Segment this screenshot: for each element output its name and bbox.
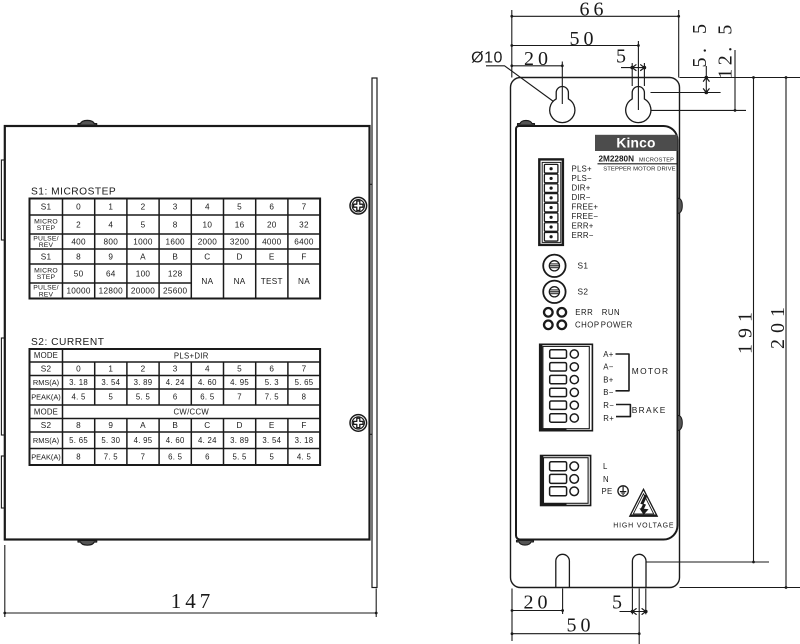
svg-text:FREE−: FREE− [572,212,599,221]
svg-text:NA: NA [298,277,310,286]
svg-text:4: 4 [108,220,113,229]
svg-text:CW/CCW: CW/CCW [174,408,210,417]
svg-text:NA: NA [201,277,213,286]
svg-text:2: 2 [76,220,81,229]
svg-text:2: 2 [141,365,146,374]
svg-text:CHOP: CHOP [575,321,600,330]
svg-text:D: D [236,252,242,261]
svg-text:PLS−: PLS− [572,174,593,183]
svg-text:A: A [140,252,146,261]
svg-text:STEP: STEP [37,225,56,232]
svg-text:D: D [236,421,242,430]
svg-text:MODE: MODE [34,407,58,416]
svg-text:S2: CURRENT: S2: CURRENT [31,337,104,348]
svg-text:A+: A+ [603,350,614,359]
svg-text:9: 9 [108,421,113,430]
svg-text:10: 10 [203,220,213,229]
svg-text:MOTOR: MOTOR [632,366,670,376]
svg-text:7: 7 [141,452,146,461]
svg-text:50: 50 [567,615,595,637]
svg-text:6. 5: 6. 5 [200,393,215,402]
svg-text:PE: PE [602,487,613,496]
svg-text:4. 5: 4. 5 [71,393,86,402]
svg-text:6. 5: 6. 5 [168,452,183,461]
svg-text:0: 0 [76,203,81,212]
svg-text:S2: S2 [41,421,52,430]
svg-text:STEP: STEP [37,274,56,281]
svg-text:5: 5 [269,452,274,461]
svg-text:10000: 10000 [66,287,90,296]
svg-text:20: 20 [267,220,277,229]
svg-text:64: 64 [106,269,116,278]
svg-text:3: 3 [173,365,178,374]
svg-text:128: 128 [168,269,183,278]
svg-text:A: A [140,421,146,430]
svg-text:5. 65: 5. 65 [69,436,88,445]
svg-text:3200: 3200 [230,237,250,246]
svg-text:F: F [301,252,306,261]
svg-text:7. 5: 7. 5 [265,393,280,402]
svg-text:100: 100 [136,269,151,278]
svg-text:C: C [204,252,210,261]
svg-text:REV: REV [39,291,54,298]
svg-text:B: B [172,421,178,430]
svg-text:6: 6 [205,452,210,461]
svg-text:7: 7 [302,365,307,374]
svg-text:6: 6 [173,393,178,402]
svg-text:RMS(A): RMS(A) [33,436,59,445]
svg-text:3. 18: 3. 18 [69,378,88,387]
svg-text:147: 147 [171,589,215,613]
svg-text:B: B [172,252,178,261]
svg-text:Kinco: Kinco [616,135,655,150]
svg-text:L: L [603,462,608,471]
svg-text:1: 1 [108,203,113,212]
svg-text:5: 5 [616,45,626,67]
svg-text:TEST: TEST [261,277,283,286]
svg-text:8: 8 [302,393,307,402]
svg-text:800: 800 [104,237,119,246]
svg-text:FREE+: FREE+ [572,203,599,212]
svg-text:C: C [204,421,210,430]
svg-text:66: 66 [580,0,608,21]
svg-text:R+: R+ [603,414,614,423]
svg-text:3. 18: 3. 18 [295,436,314,445]
svg-text:5: 5 [108,393,113,402]
svg-text:HIGH VOLTAGE: HIGH VOLTAGE [613,522,674,529]
svg-text:PEAK(A): PEAK(A) [31,452,61,461]
svg-text:7: 7 [302,203,307,212]
svg-text:5: 5 [237,365,242,374]
svg-text:RMS(A): RMS(A) [33,378,59,387]
svg-text:7: 7 [237,393,242,402]
svg-text:4. 24: 4. 24 [166,378,185,387]
svg-text:8: 8 [76,252,81,261]
svg-text:POWER: POWER [601,321,633,330]
svg-text:PLS+: PLS+ [572,165,593,174]
svg-text:MODE: MODE [34,351,58,360]
svg-text:4. 95: 4. 95 [230,378,249,387]
svg-text:20: 20 [524,592,552,614]
svg-text:9: 9 [108,252,113,261]
svg-text:201: 201 [767,301,789,349]
svg-text:RUN: RUN [602,308,620,317]
svg-text:DIR−: DIR− [572,193,591,202]
svg-text:20: 20 [524,48,552,70]
svg-text:3. 89: 3. 89 [230,436,249,445]
svg-text:20000: 20000 [131,287,155,296]
svg-text:DIR+: DIR+ [572,184,591,193]
svg-text:5: 5 [237,203,242,212]
svg-text:4: 4 [205,203,210,212]
svg-text:5. 5: 5. 5 [689,20,711,68]
svg-text:NA: NA [234,277,246,286]
svg-text:1600: 1600 [165,237,185,246]
svg-text:4. 5: 4. 5 [297,452,312,461]
svg-text:5. 5: 5. 5 [232,452,247,461]
svg-text:50: 50 [570,28,598,50]
svg-text:ERR: ERR [575,308,593,317]
svg-text:3: 3 [173,203,178,212]
svg-text:12800: 12800 [99,287,123,296]
svg-text:5. 65: 5. 65 [295,378,314,387]
svg-text:S2: S2 [41,365,52,374]
svg-text:3. 89: 3. 89 [134,378,153,387]
svg-text:4: 4 [205,365,210,374]
svg-text:7. 5: 7. 5 [104,452,119,461]
svg-text:5. 30: 5. 30 [101,436,120,445]
svg-text:6: 6 [269,365,274,374]
svg-text:E: E [269,421,275,430]
svg-text:0: 0 [76,365,81,374]
svg-text:STEPPER MOTOR DRIVE: STEPPER MOTOR DRIVE [603,167,676,173]
svg-text:A−: A− [603,363,614,372]
svg-text:5: 5 [612,592,622,614]
svg-text:4. 95: 4. 95 [134,436,153,445]
svg-text:Ø10: Ø10 [471,50,503,67]
svg-text:S1: MICROSTEP: S1: MICROSTEP [31,187,116,198]
svg-text:2M2280N: 2M2280N [599,154,635,163]
svg-text:50: 50 [74,269,84,278]
svg-text:2000: 2000 [198,237,218,246]
svg-text:5. 3: 5. 3 [265,378,279,387]
svg-text:MICROSTEP: MICROSTEP [639,157,674,163]
svg-text:12. 5: 12. 5 [715,21,737,79]
svg-text:4000: 4000 [262,237,282,246]
svg-text:25600: 25600 [163,287,187,296]
svg-text:8: 8 [76,421,81,430]
svg-text:4. 24: 4. 24 [198,436,217,445]
svg-text:2: 2 [141,203,146,212]
svg-text:8: 8 [76,452,81,461]
svg-text:6: 6 [269,203,274,212]
svg-text:8: 8 [173,220,178,229]
svg-text:16: 16 [235,220,245,229]
svg-text:1000: 1000 [133,237,153,246]
svg-text:R−: R− [603,401,614,410]
svg-text:ERR−: ERR− [572,231,594,240]
svg-text:S1: S1 [41,203,52,212]
svg-text:400: 400 [71,237,86,246]
svg-text:B−: B− [603,388,614,397]
svg-text:E: E [269,252,275,261]
svg-text:1: 1 [108,365,113,374]
svg-text:4. 60: 4. 60 [198,378,217,387]
svg-text:3. 54: 3. 54 [262,436,281,445]
svg-text:4. 60: 4. 60 [166,436,185,445]
svg-text:S1: S1 [578,261,589,271]
svg-text:32: 32 [299,220,309,229]
svg-text:PLS+DIR: PLS+DIR [174,351,209,360]
svg-text:REV: REV [39,242,54,249]
svg-text:191: 191 [735,306,757,354]
svg-text:5: 5 [141,220,146,229]
svg-text:F: F [301,421,306,430]
svg-text:S2: S2 [578,287,589,297]
svg-text:S1: S1 [41,252,52,261]
svg-text:BRAKE: BRAKE [632,405,667,415]
svg-text:6400: 6400 [294,237,314,246]
svg-text:ERR+: ERR+ [572,222,594,231]
svg-text:B+: B+ [603,375,614,384]
svg-text:N: N [603,475,609,484]
svg-text:3. 54: 3. 54 [101,378,120,387]
svg-text:5. 5: 5. 5 [136,393,151,402]
svg-text:PEAK(A): PEAK(A) [31,393,61,402]
